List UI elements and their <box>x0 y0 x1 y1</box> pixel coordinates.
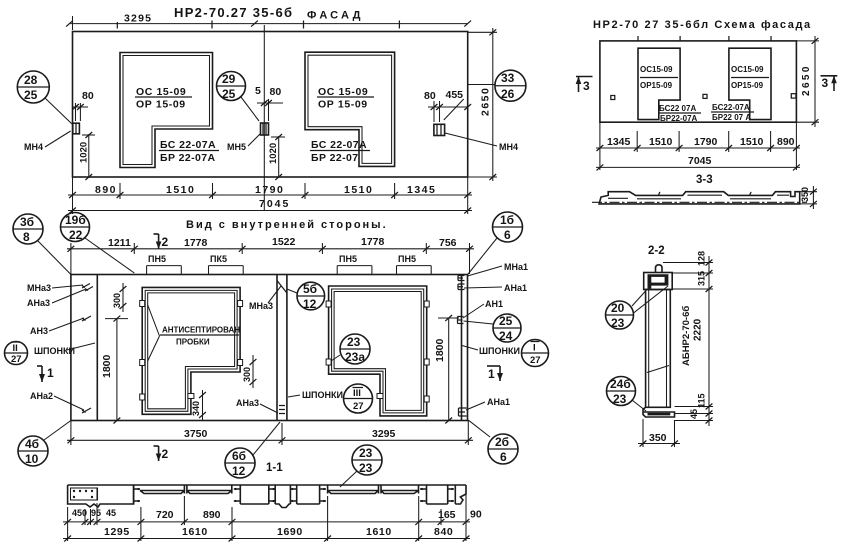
svg-text:24б: 24б <box>610 377 631 391</box>
svg-text:890: 890 <box>203 509 221 521</box>
svg-text:890: 890 <box>95 184 117 196</box>
svg-text:ФАСАД: ФАСАД <box>307 10 364 22</box>
svg-text:МНа3: МНа3 <box>27 283 51 293</box>
svg-text:7045: 7045 <box>688 155 712 167</box>
svg-text:3: 3 <box>822 76 829 90</box>
svg-text:20: 20 <box>611 301 625 315</box>
svg-text:2-2: 2-2 <box>648 245 665 257</box>
svg-text:ШПОНКИ: ШПОНКИ <box>479 346 520 356</box>
svg-text:22: 22 <box>69 228 83 242</box>
svg-text:3295: 3295 <box>372 428 396 440</box>
svg-text:1510: 1510 <box>740 136 764 148</box>
svg-text:1020: 1020 <box>79 142 90 163</box>
svg-text:1778: 1778 <box>361 236 385 248</box>
svg-text:1510: 1510 <box>344 184 373 196</box>
svg-text:1800: 1800 <box>434 338 446 362</box>
svg-text:1610: 1610 <box>366 526 392 538</box>
svg-text:3: 3 <box>583 79 590 93</box>
svg-text:БР 22-07: БР 22-07 <box>311 152 359 164</box>
svg-text:БС22-07А: БС22-07А <box>712 103 750 112</box>
svg-text:80: 80 <box>82 90 94 102</box>
svg-text:АНТИСЕПТИРОВАН: АНТИСЕПТИРОВАН <box>162 326 240 335</box>
svg-text:НР2-70.27 35-6б: НР2-70.27 35-6б <box>174 5 293 20</box>
svg-text:1295: 1295 <box>104 526 130 538</box>
svg-text:25: 25 <box>499 314 513 328</box>
svg-text:1778: 1778 <box>184 237 208 249</box>
svg-text:3295: 3295 <box>124 13 152 25</box>
svg-text:115: 115 <box>697 393 707 408</box>
svg-text:27: 27 <box>11 354 22 365</box>
svg-text:165: 165 <box>438 509 456 521</box>
svg-text:БС22 07А: БС22 07А <box>659 104 696 113</box>
svg-text:АН1: АН1 <box>485 299 503 309</box>
svg-text:БС 22-07А: БС 22-07А <box>311 139 367 151</box>
svg-text:7045: 7045 <box>259 198 290 210</box>
svg-text:1-1: 1-1 <box>266 462 283 474</box>
svg-text:1800: 1800 <box>101 354 113 378</box>
svg-text:ОР15-09: ОР15-09 <box>731 81 764 90</box>
svg-text:350: 350 <box>800 187 810 202</box>
svg-text:27: 27 <box>353 401 364 412</box>
svg-text:12: 12 <box>232 464 246 478</box>
svg-text:БР22-07А: БР22-07А <box>660 114 698 123</box>
svg-text:23: 23 <box>613 392 627 406</box>
svg-text:1: 1 <box>47 366 54 380</box>
svg-text:455: 455 <box>446 89 464 101</box>
svg-text:1б: 1б <box>500 213 514 227</box>
svg-text:5: 5 <box>255 85 261 97</box>
svg-text:6: 6 <box>504 228 511 242</box>
svg-text:ОР15-09: ОР15-09 <box>640 81 673 90</box>
svg-text:ОР 15-09: ОР 15-09 <box>318 99 368 111</box>
svg-text:БС 22-07А: БС 22-07А <box>160 139 216 151</box>
svg-text:ОС 15-09: ОС 15-09 <box>136 86 186 98</box>
svg-text:23: 23 <box>347 335 361 349</box>
svg-text:23а: 23а <box>345 350 365 364</box>
svg-text:НР2-70 27 35-6бл Схема фасада: НР2-70 27 35-6бл Схема фасада <box>593 19 812 31</box>
svg-text:2: 2 <box>162 235 169 249</box>
svg-text:12: 12 <box>303 297 317 311</box>
svg-text:МНа3: МНа3 <box>249 301 273 311</box>
svg-text:МНа1: МНа1 <box>504 262 528 272</box>
svg-text:450: 450 <box>72 508 87 518</box>
svg-text:ПРОБКИ: ПРОБКИ <box>176 338 210 347</box>
svg-text:АНа1: АНа1 <box>504 283 527 293</box>
svg-text:840: 840 <box>434 526 453 538</box>
svg-text:23: 23 <box>359 461 373 475</box>
svg-text:315: 315 <box>697 271 707 286</box>
svg-text:25: 25 <box>24 88 38 102</box>
svg-text:I: I <box>533 343 536 354</box>
svg-text:350: 350 <box>649 432 667 444</box>
svg-text:45: 45 <box>106 508 116 518</box>
svg-text:1345: 1345 <box>607 136 631 148</box>
svg-text:ОС 15-09: ОС 15-09 <box>318 86 368 98</box>
svg-text:3б: 3б <box>20 215 34 229</box>
svg-text:АНа3: АНа3 <box>236 398 259 408</box>
svg-text:5б: 5б <box>303 282 317 296</box>
svg-text:340: 340 <box>191 401 201 416</box>
svg-text:ПН5: ПН5 <box>339 254 357 264</box>
svg-text:ПК5: ПК5 <box>210 254 227 264</box>
svg-text:1020: 1020 <box>268 143 279 164</box>
svg-text:10: 10 <box>25 452 39 466</box>
svg-text:80: 80 <box>424 90 436 102</box>
svg-text:1510: 1510 <box>166 184 195 196</box>
svg-text:АНа1: АНа1 <box>487 397 510 407</box>
svg-text:2650: 2650 <box>480 87 492 116</box>
svg-text:26: 26 <box>501 87 515 101</box>
svg-text:6б: 6б <box>232 449 246 463</box>
svg-text:90: 90 <box>470 509 482 521</box>
svg-text:6: 6 <box>500 450 507 464</box>
svg-text:ПН5: ПН5 <box>398 254 416 264</box>
svg-text:3-3: 3-3 <box>696 174 713 186</box>
svg-text:1610: 1610 <box>182 526 208 538</box>
svg-text:1790: 1790 <box>694 136 718 148</box>
svg-text:2б: 2б <box>495 435 509 449</box>
svg-text:756: 756 <box>439 237 457 249</box>
svg-text:МН5: МН5 <box>227 142 246 152</box>
svg-text:1690: 1690 <box>277 526 303 538</box>
svg-text:3750: 3750 <box>184 428 208 440</box>
svg-text:ПН5: ПН5 <box>148 254 166 264</box>
svg-text:АБНР2-70-6б: АБНР2-70-6б <box>681 306 692 366</box>
svg-text:24: 24 <box>499 329 513 343</box>
svg-text:МН4: МН4 <box>499 142 518 152</box>
svg-text:300: 300 <box>242 367 252 382</box>
svg-text:2650: 2650 <box>801 64 812 96</box>
svg-text:95: 95 <box>91 508 101 518</box>
svg-text:БР 22-07А: БР 22-07А <box>160 152 216 164</box>
svg-text:27: 27 <box>530 355 541 366</box>
svg-text:28: 28 <box>24 73 38 87</box>
svg-text:Вид с внутренней стороны.: Вид с внутренней стороны. <box>186 219 388 231</box>
svg-text:80: 80 <box>270 86 282 98</box>
svg-text:19б: 19б <box>65 213 86 227</box>
svg-text:АНа2: АНа2 <box>30 391 53 401</box>
svg-text:1345: 1345 <box>407 184 436 196</box>
svg-text:ОС15-09: ОС15-09 <box>731 65 764 74</box>
svg-text:ШПОНКИ: ШПОНКИ <box>302 390 343 400</box>
svg-text:АН3: АН3 <box>30 326 48 336</box>
svg-text:23: 23 <box>359 446 373 460</box>
svg-text:1: 1 <box>488 367 495 381</box>
svg-text:33: 33 <box>501 71 515 85</box>
svg-text:720: 720 <box>156 509 174 521</box>
svg-text:2: 2 <box>162 447 169 461</box>
svg-text:1510: 1510 <box>649 136 673 148</box>
svg-text:II: II <box>13 343 18 354</box>
svg-text:4б: 4б <box>25 437 39 451</box>
svg-text:2220: 2220 <box>693 318 704 341</box>
svg-text:БР22 07 А: БР22 07 А <box>712 113 751 122</box>
svg-text:8: 8 <box>23 230 30 244</box>
svg-text:45: 45 <box>689 409 699 419</box>
svg-text:МН4: МН4 <box>24 142 43 152</box>
svg-text:128: 128 <box>697 251 707 266</box>
svg-text:890: 890 <box>777 136 795 148</box>
svg-text:25: 25 <box>222 87 236 101</box>
svg-text:ОР 15-09: ОР 15-09 <box>136 99 186 111</box>
svg-text:ШПОНКИ: ШПОНКИ <box>34 346 75 356</box>
svg-text:АНа3: АНа3 <box>27 298 50 308</box>
svg-text:300: 300 <box>112 293 122 308</box>
svg-text:1211: 1211 <box>108 237 131 249</box>
svg-text:1790: 1790 <box>255 184 284 196</box>
svg-text:III: III <box>353 388 361 399</box>
svg-text:1522: 1522 <box>272 236 296 248</box>
svg-text:29: 29 <box>222 72 236 86</box>
svg-text:ОС15-09: ОС15-09 <box>640 65 673 74</box>
svg-text:23: 23 <box>611 316 625 330</box>
